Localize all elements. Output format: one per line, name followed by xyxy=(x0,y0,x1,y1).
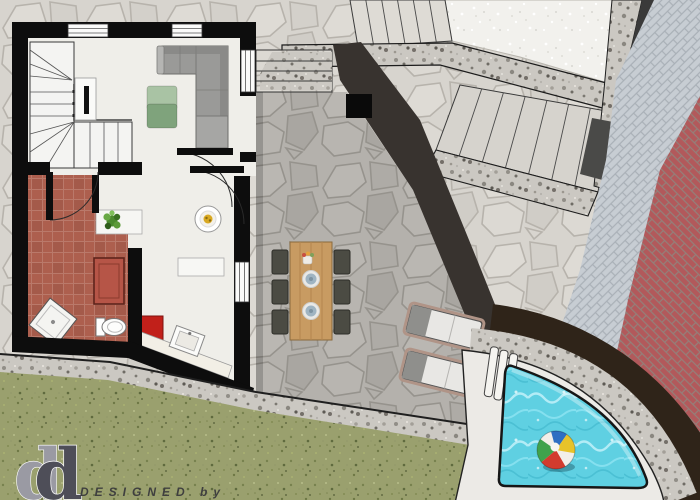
door-leaf-living xyxy=(177,148,233,155)
floor-plan-canvas: d d DESIGNED by xyxy=(0,0,700,500)
red-bench xyxy=(94,258,124,304)
outdoor-staircase-upper xyxy=(350,0,452,47)
door-leaf-kitchen xyxy=(190,166,244,173)
coffee-table xyxy=(147,86,177,128)
window-right-upper xyxy=(241,50,255,92)
credit-line: DESIGNED by xyxy=(80,485,226,499)
logo-letter-front: d xyxy=(34,433,83,500)
window-top-1 xyxy=(68,24,108,37)
stone-steps xyxy=(256,50,332,92)
house xyxy=(12,22,256,404)
dining-set xyxy=(272,242,350,340)
window-top-2 xyxy=(172,24,202,37)
tv-unit xyxy=(75,78,96,120)
house-shadow xyxy=(256,92,263,392)
table-vase xyxy=(302,252,314,265)
window-right-lower xyxy=(235,262,249,302)
plant-counter xyxy=(96,210,142,234)
post-pillar xyxy=(346,94,372,118)
kitchen-counter xyxy=(178,258,224,276)
site-plan-svg: d d DESIGNED by xyxy=(0,0,700,500)
door-leaf-bathroom xyxy=(46,172,53,220)
toilet xyxy=(96,318,126,336)
round-table xyxy=(195,206,221,232)
